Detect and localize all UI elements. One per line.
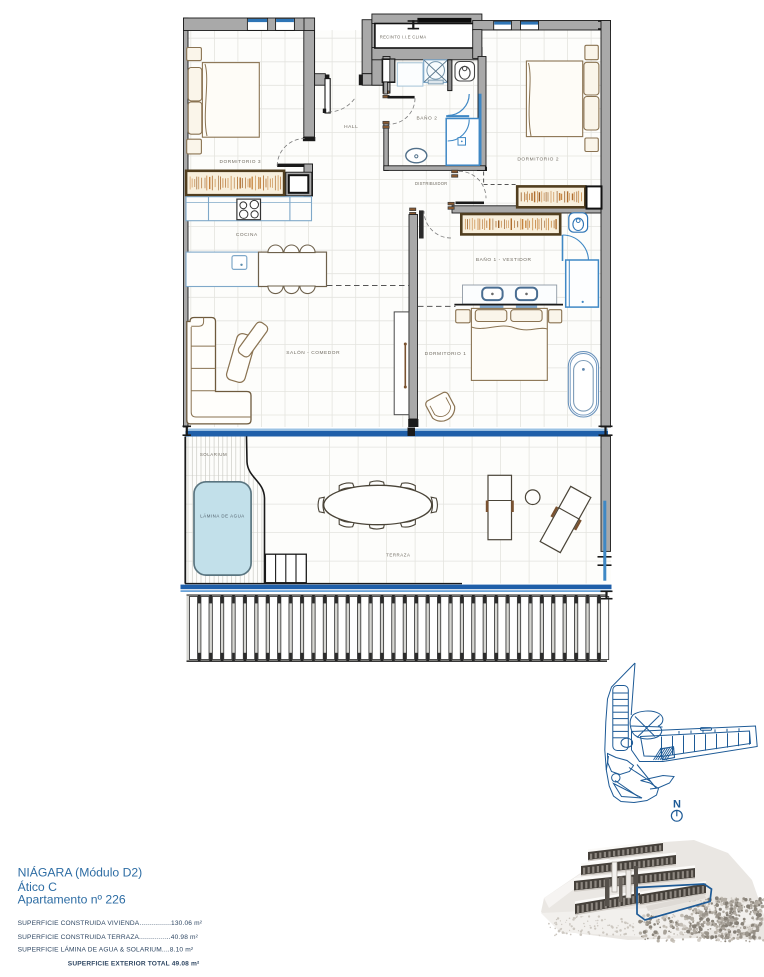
svg-text:SUPERFICIE LÁMINA DE AGUA & SO: SUPERFICIE LÁMINA DE AGUA & SOLARIUM....… <box>18 945 194 954</box>
svg-text:SALÓN - COMEDOR: SALÓN - COMEDOR <box>286 349 340 356</box>
svg-text:TERRAZA: TERRAZA <box>386 553 410 558</box>
svg-text:RECINTO I.I.E CLIMA: RECINTO I.I.E CLIMA <box>380 35 427 40</box>
svg-text:SUPERFICIE CONSTRUIDA TERRAZA.: SUPERFICIE CONSTRUIDA TERRAZA...........… <box>18 934 199 941</box>
svg-text:NIÁGARA (Módulo D2): NIÁGARA (Módulo D2) <box>18 865 143 880</box>
svg-text:BAÑO 2: BAÑO 2 <box>417 114 438 121</box>
svg-text:SUPERFICIE EXTERIOR TOTAL 49.0: SUPERFICIE EXTERIOR TOTAL 49.08 m² <box>68 961 200 968</box>
svg-text:Apartamento nº 226: Apartamento nº 226 <box>18 893 126 907</box>
svg-text:COCINA: COCINA <box>236 232 258 238</box>
svg-text:DISTRIBUIDOR: DISTRIBUIDOR <box>415 181 447 186</box>
svg-text:BAÑO 1 - VESTIDOR: BAÑO 1 - VESTIDOR <box>476 256 532 263</box>
svg-text:SOLARIUM: SOLARIUM <box>200 452 227 457</box>
svg-text:HALL: HALL <box>344 124 358 130</box>
svg-text:DORMITORIO 1: DORMITORIO 1 <box>425 351 467 357</box>
svg-text:SUPERFICIE CONSTRUIDA VIVIENDA: SUPERFICIE CONSTRUIDA VIVIENDA..........… <box>18 920 203 927</box>
svg-text:DORMITORIO 2: DORMITORIO 2 <box>517 156 559 162</box>
svg-text:LÁMINA DE AGUA: LÁMINA DE AGUA <box>200 514 245 519</box>
svg-text:N: N <box>673 799 681 811</box>
svg-text:DORMITORIO 3: DORMITORIO 3 <box>219 159 261 165</box>
